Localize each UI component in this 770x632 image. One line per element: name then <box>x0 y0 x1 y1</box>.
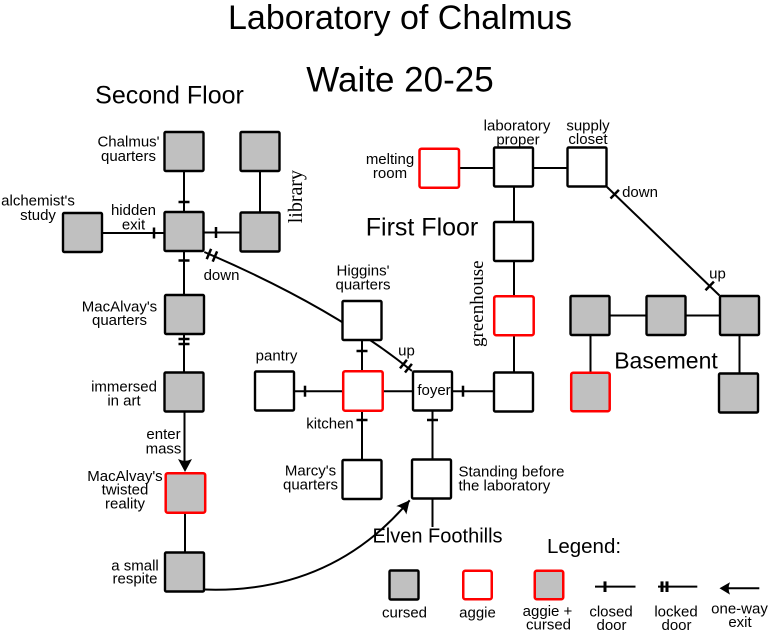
svg-text:quarters: quarters <box>283 477 338 494</box>
svg-text:Basement: Basement <box>614 348 718 374</box>
svg-text:up: up <box>709 266 726 283</box>
svg-text:the laboratory: the laboratory <box>459 478 551 495</box>
svg-text:proper: proper <box>496 132 539 149</box>
svg-text:library: library <box>285 170 307 223</box>
svg-text:mass: mass <box>146 441 182 458</box>
svg-text:study: study <box>20 207 56 224</box>
svg-text:kitchen: kitchen <box>306 416 354 433</box>
svg-text:down: down <box>622 184 658 201</box>
svg-text:quarters: quarters <box>101 148 156 165</box>
svg-text:pantry: pantry <box>256 348 298 365</box>
svg-text:exit: exit <box>122 216 146 233</box>
svg-text:foyer: foyer <box>417 382 450 399</box>
svg-text:Waite 20-25: Waite 20-25 <box>306 61 493 100</box>
svg-text:quarters: quarters <box>92 312 147 329</box>
svg-text:greenhouse: greenhouse <box>467 260 488 347</box>
svg-text:down: down <box>204 267 240 284</box>
svg-text:respite: respite <box>112 571 157 588</box>
svg-text:exit: exit <box>728 614 752 631</box>
svg-text:cursed: cursed <box>382 605 427 622</box>
svg-text:quarters: quarters <box>335 277 390 294</box>
svg-text:reality: reality <box>105 496 146 513</box>
svg-text:up: up <box>398 343 415 360</box>
svg-text:closet: closet <box>568 131 608 148</box>
svg-text:Laboratory of Chalmus: Laboratory of Chalmus <box>228 0 572 37</box>
svg-text:door: door <box>596 617 626 632</box>
svg-text:aggie: aggie <box>459 605 496 622</box>
svg-text:door: door <box>661 617 691 632</box>
svg-text:First Floor: First Floor <box>366 214 479 242</box>
svg-text:Legend:: Legend: <box>547 535 621 558</box>
svg-text:Elven Foothills: Elven Foothills <box>372 526 502 548</box>
svg-text:cursed: cursed <box>526 617 571 632</box>
svg-text:Second Floor: Second Floor <box>95 82 244 110</box>
svg-text:in art: in art <box>107 393 141 410</box>
svg-text:room: room <box>373 165 407 182</box>
